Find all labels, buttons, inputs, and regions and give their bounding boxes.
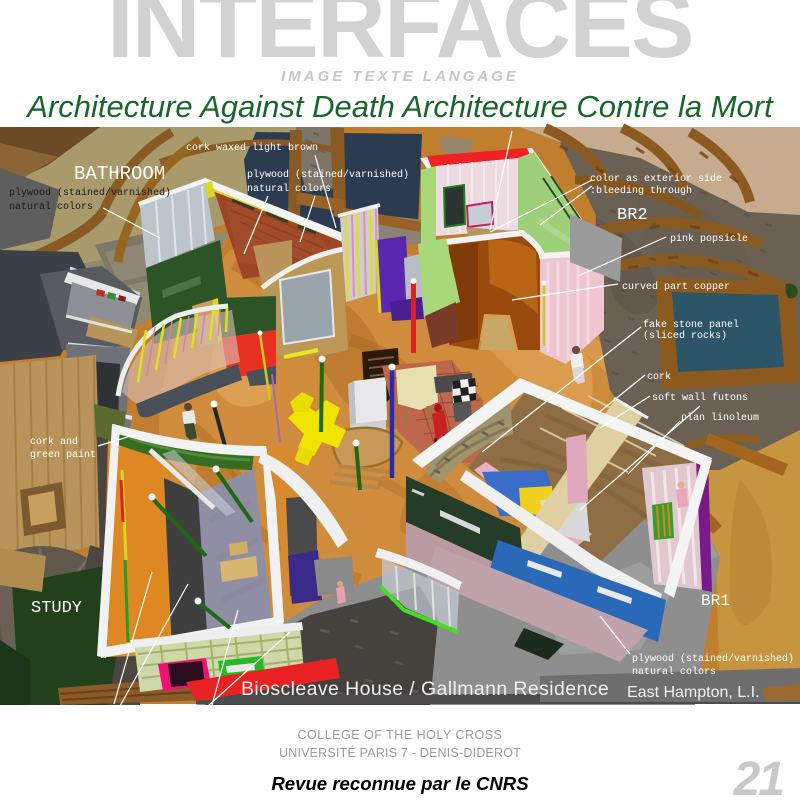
svg-text:plywood (stained/varnished): plywood (stained/varnished) [9, 187, 171, 199]
svg-text:pink popsicle: pink popsicle [670, 233, 748, 245]
svg-text:UNIVERSITÉ PARIS 7 - DENIS-DID: UNIVERSITÉ PARIS 7 - DENIS-DIDEROT [279, 745, 521, 760]
svg-text:INTERFACES: INTERFACES [107, 0, 693, 78]
svg-text:plywood (stained/varnished): plywood (stained/varnished) [632, 653, 794, 665]
svg-text:cork waxed light brown: cork waxed light brown [186, 142, 318, 154]
svg-text:STUDY: STUDY [31, 599, 82, 618]
svg-text:natural colors: natural colors [9, 201, 93, 213]
svg-text::bleeding through: :bleeding through [590, 185, 692, 197]
svg-text:East Hampton, L.I.: East Hampton, L.I. [627, 684, 760, 701]
svg-text:curved part copper: curved part copper [622, 281, 730, 293]
svg-text:Bioscleave House / Gallmann Re: Bioscleave House / Gallmann Residence [241, 678, 609, 700]
svg-text:cork: cork [647, 371, 671, 383]
svg-text:natural colors: natural colors [247, 183, 331, 195]
svg-text:soft wall futons: soft wall futons [652, 392, 748, 404]
svg-text:21: 21 [733, 753, 784, 800]
svg-text:fake stone panel: fake stone panel [643, 319, 739, 331]
svg-text:natural colors: natural colors [632, 666, 716, 678]
svg-text:BATHROOM: BATHROOM [74, 163, 165, 185]
svg-text:COLLEGE OF THE HOLY CROSS: COLLEGE OF THE HOLY CROSS [298, 728, 503, 742]
svg-text:green paint: green paint [30, 449, 96, 461]
svg-text:cork and: cork and [30, 436, 78, 448]
svg-text:(sliced rocks): (sliced rocks) [643, 330, 727, 342]
svg-text:BR1: BR1 [701, 592, 730, 610]
svg-text:color as exterior side: color as exterior side [590, 173, 722, 185]
svg-text:plan linoleum: plan linoleum [681, 412, 759, 424]
svg-text:Revue reconnue par le CNRS: Revue reconnue par le CNRS [271, 773, 529, 794]
svg-text:BR2: BR2 [617, 206, 648, 225]
svg-text:IMAGE TEXTE LANGAGE: IMAGE TEXTE LANGAGE [281, 68, 519, 85]
svg-text:plywood (stained/varnished): plywood (stained/varnished) [247, 169, 409, 181]
svg-text:Architecture Against Death Arc: Architecture Against Death Architecture … [25, 89, 774, 124]
